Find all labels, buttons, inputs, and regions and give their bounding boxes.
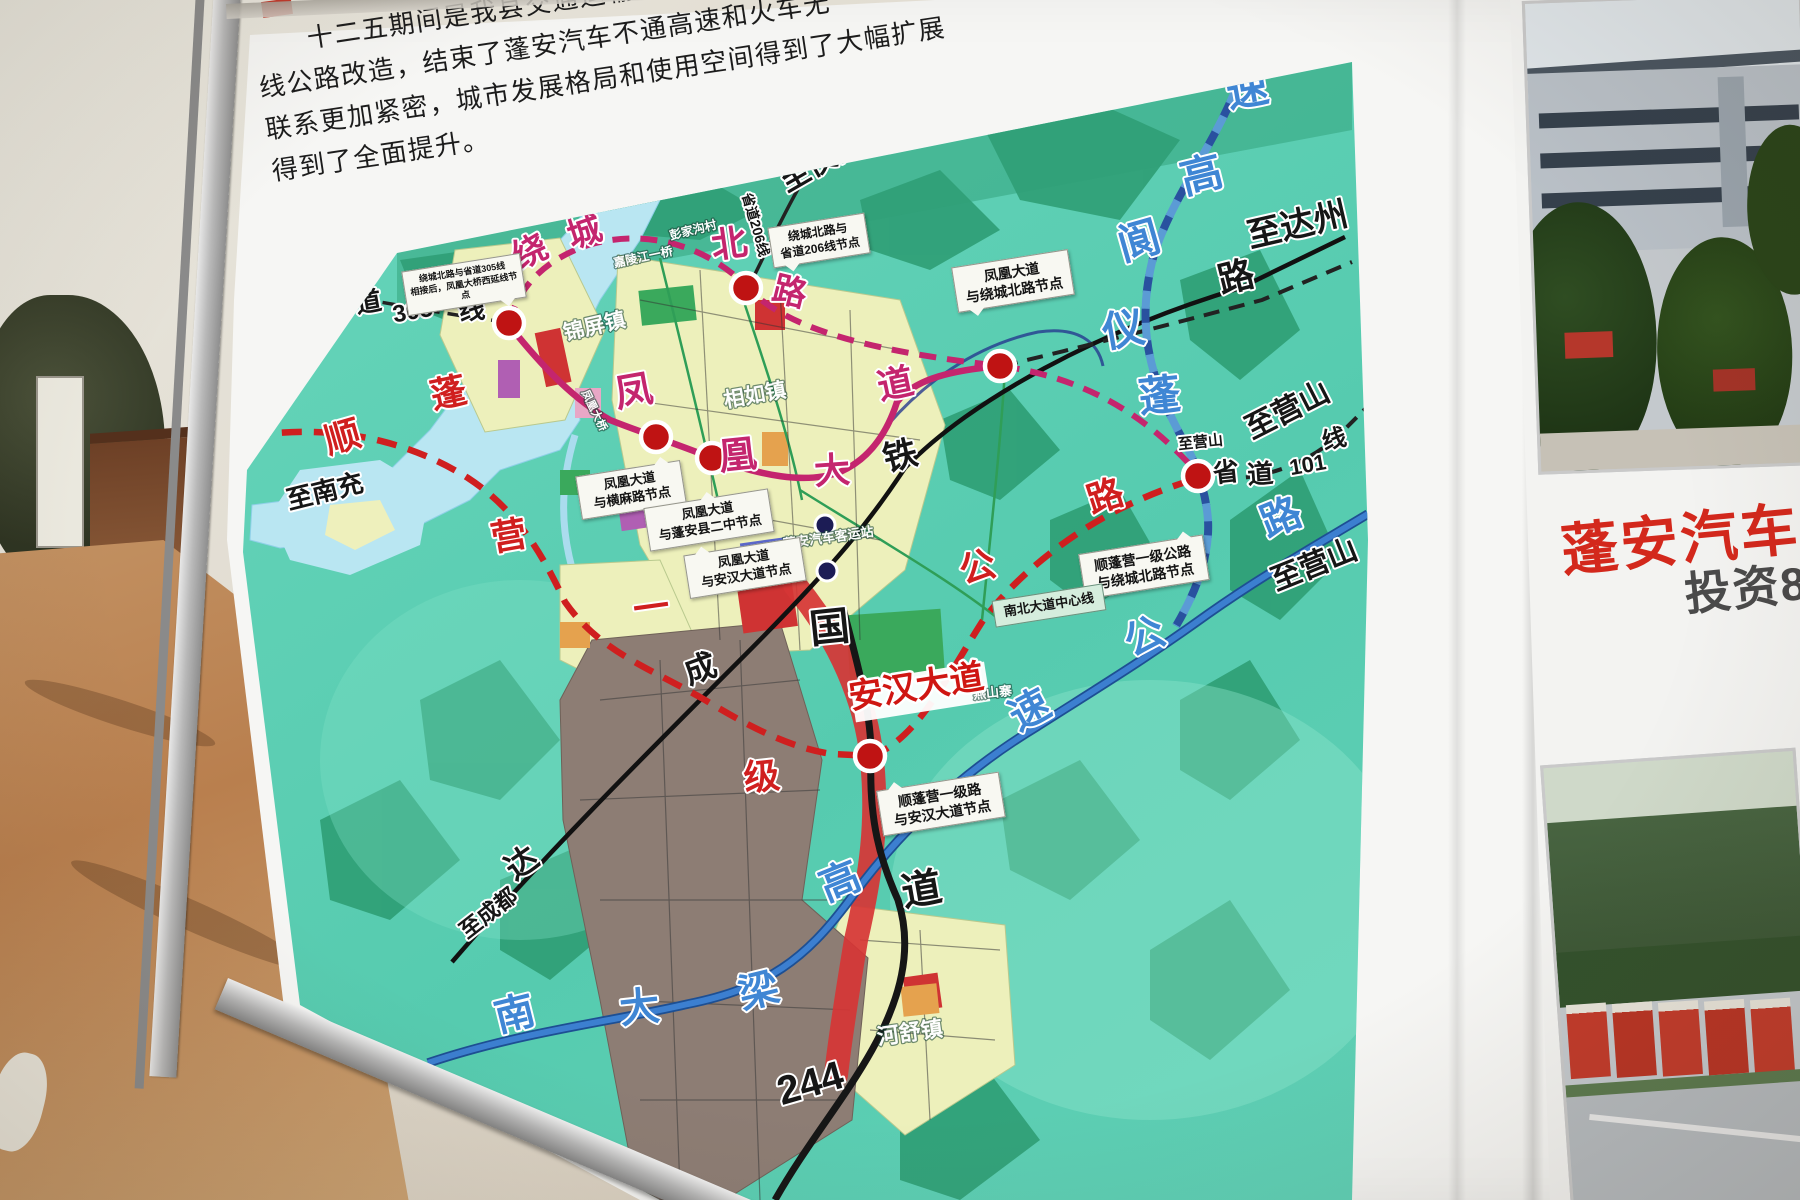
photo-billboard [1704, 999, 1749, 1076]
callout-pointer [651, 448, 669, 466]
photo-billboard [1566, 1002, 1611, 1079]
callout-pointer [692, 537, 710, 555]
map-callout: 绕城北路与省道206线节点 [767, 213, 870, 269]
photo-bus [1713, 368, 1756, 391]
map-callout: 顺蓬营一级路与安汉大道节点 [876, 772, 1006, 837]
map-callout-line: 南北大道中心线 [998, 589, 1099, 621]
photo-billboard [1750, 998, 1795, 1075]
callout-pointer [885, 773, 903, 791]
map-callout: 凤凰大道与绕城北路节点 [951, 249, 1075, 313]
highway-billboards-photo [1540, 748, 1800, 1200]
photo-billboard [1658, 1000, 1703, 1077]
photo-billboard [1612, 1001, 1657, 1078]
photo-road [1566, 1080, 1800, 1200]
callout-pointer [500, 297, 518, 315]
bus-station-photo [1522, 0, 1800, 475]
callout-pointer [784, 262, 802, 280]
callout-pointer [697, 483, 715, 501]
map-callout: 绕城北路与省道305线相接后，凤凰大桥西延线节点 [401, 253, 527, 316]
callout-pointer [969, 307, 987, 325]
map-callout: 凤凰大道与安汉大道节点 [683, 537, 806, 599]
callout-pointer [1174, 522, 1192, 540]
map-callout: 南北大道中心线 [992, 583, 1107, 627]
photo-glass-tower [1718, 76, 1749, 227]
photo-of-planning-board: 十二五期间是我县交通运输事业跨越式发展 线公路改造，结束了蓬安汽车不通高速和火车… [0, 0, 1800, 1200]
poster-crease [1448, 0, 1466, 1200]
photo-bus [1564, 331, 1613, 359]
